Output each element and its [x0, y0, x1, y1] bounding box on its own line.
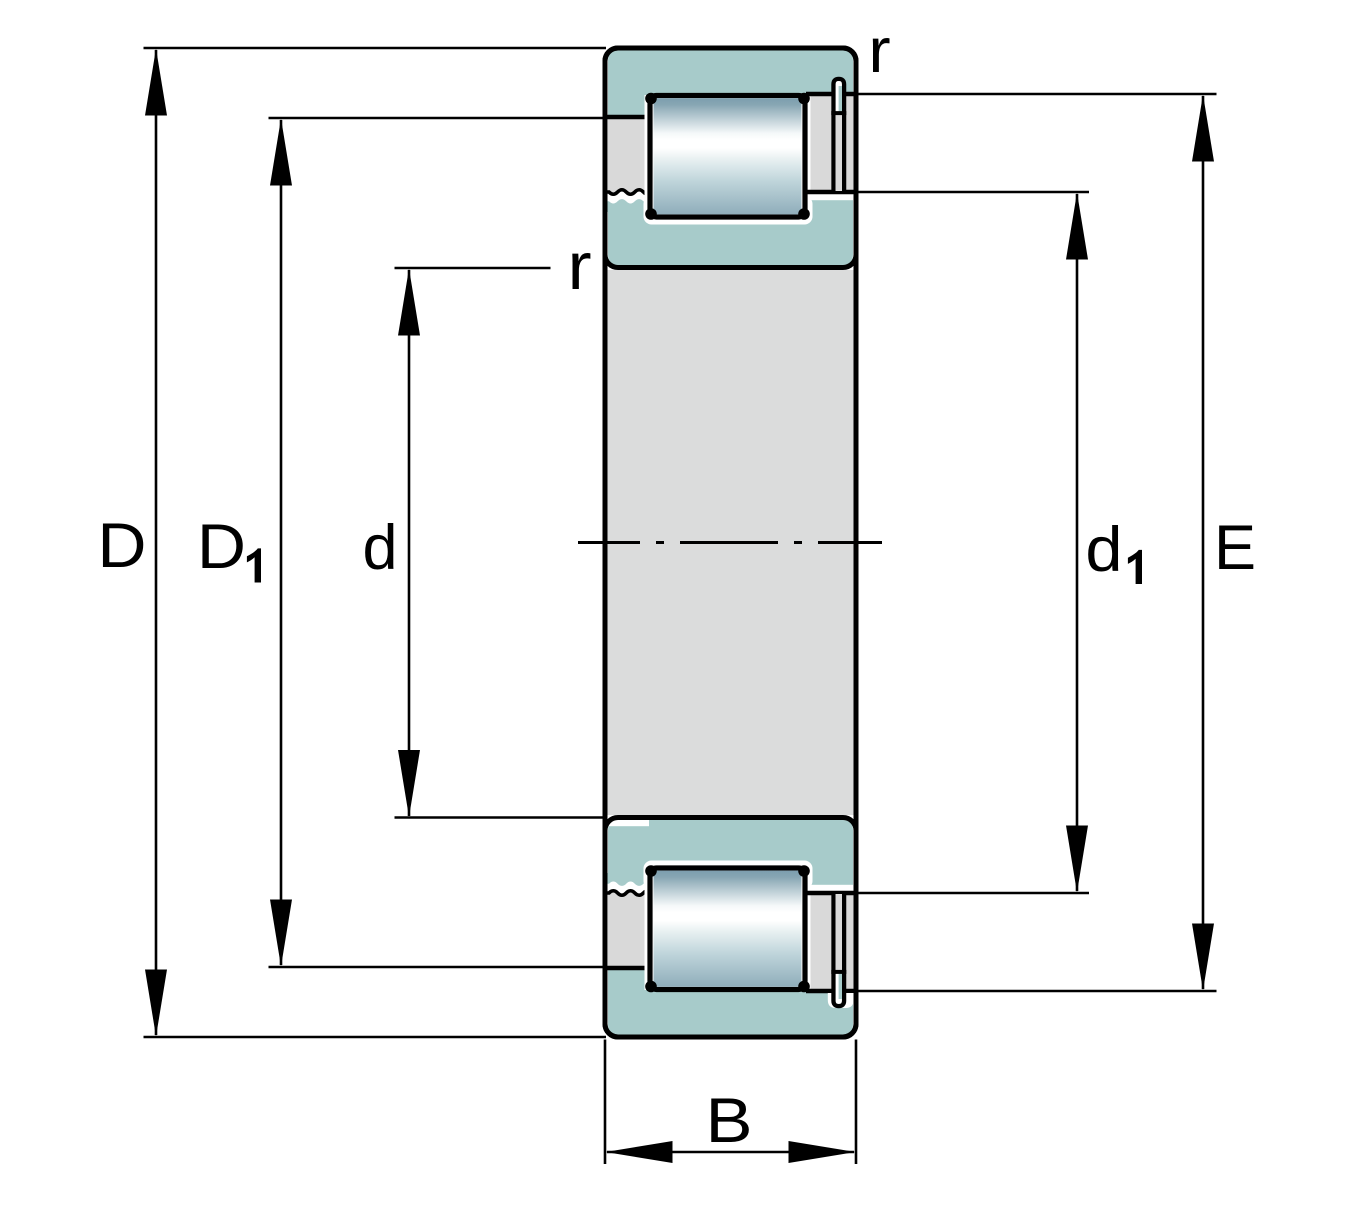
svg-text:E: E — [1214, 513, 1256, 583]
svg-text:d: d — [1085, 514, 1122, 585]
svg-text:D: D — [197, 511, 246, 581]
svg-text:r: r — [567, 228, 591, 303]
svg-text:r: r — [868, 15, 890, 86]
svg-text:D: D — [97, 510, 146, 580]
svg-text:d: d — [362, 513, 397, 583]
svg-text:B: B — [705, 1085, 752, 1156]
